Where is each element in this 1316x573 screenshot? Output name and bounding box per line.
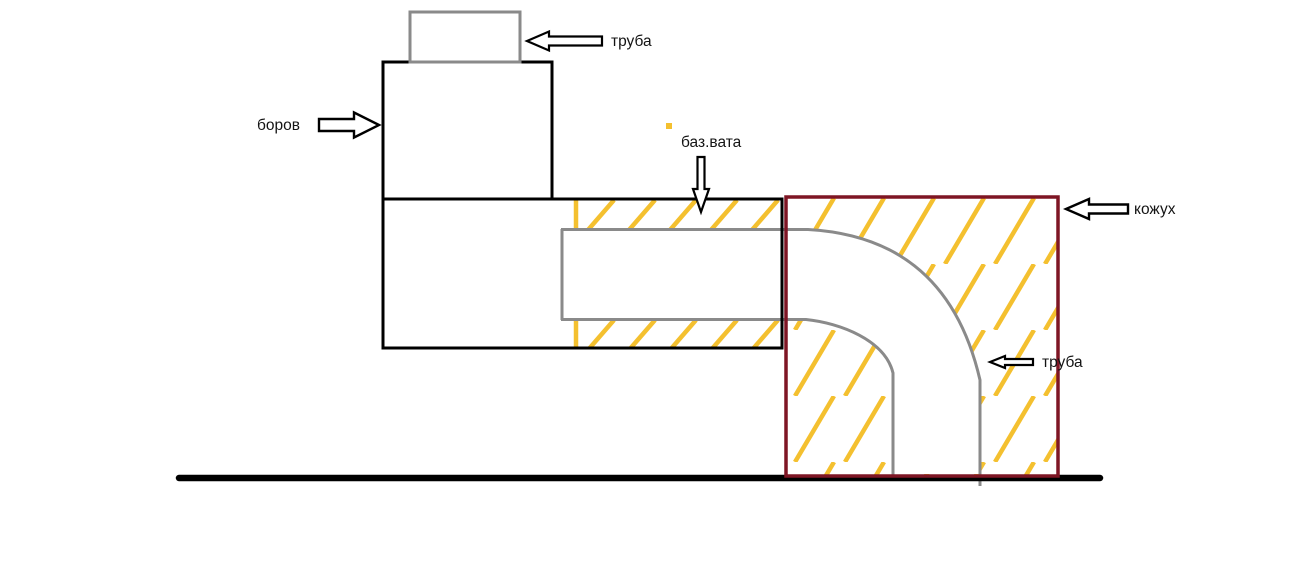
pipe-top-arrow-left-icon (527, 32, 602, 51)
insulation-strip-bottom (574, 321, 782, 348)
casing-arrow-left-icon (1066, 199, 1128, 219)
label-pipe-top: труба (611, 33, 652, 50)
label-pipe-bend: труба (1042, 354, 1083, 371)
chimney-diagram (0, 0, 1316, 573)
label-casing: кожух (1134, 201, 1175, 218)
label-insulation: баз.вата (681, 134, 741, 151)
flue-upper-box (383, 62, 552, 199)
yellow-dot (666, 123, 672, 129)
insulation-strip-top (574, 200, 782, 230)
label-flue: боров (257, 117, 300, 134)
paint-canvas: труба боров баз.вата кожух труба (0, 0, 1316, 573)
flue-arrow-right-icon (319, 113, 379, 138)
pipe-top-box (410, 12, 520, 62)
